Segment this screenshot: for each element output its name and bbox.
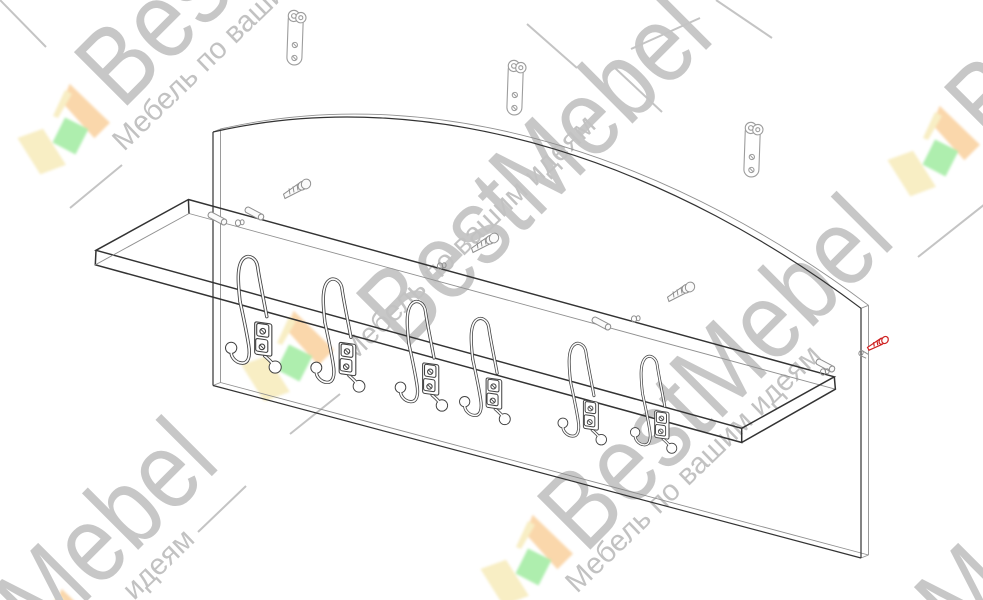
svg-text:Mebel: Mebel [0,396,239,600]
svg-text:Mebel: Mebel [892,396,983,600]
svg-text:BestMebel: BestMebel [515,173,914,572]
